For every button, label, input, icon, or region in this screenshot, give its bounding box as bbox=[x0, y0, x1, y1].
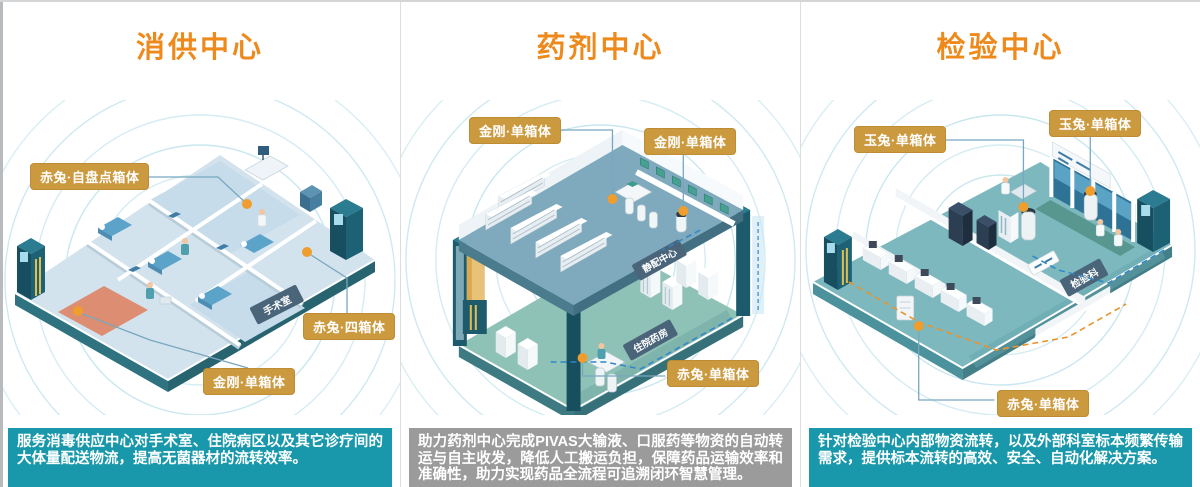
panel-pharmacy-center: 药剂中心 bbox=[400, 0, 800, 487]
scene-laboratory: 检验科 bbox=[801, 100, 1200, 415]
callout-label: 金刚·单箱体 bbox=[203, 368, 295, 395]
panel-title: 药剂中心 bbox=[401, 24, 800, 66]
panel-disinfection-supply-center: 消供中心 bbox=[0, 0, 400, 487]
panel-title: 消供中心 bbox=[0, 24, 400, 66]
smart-cabinet-right bbox=[330, 199, 363, 260]
panel-description: 助力药剂中心完成PIVAS大输液、口服药等物资的自动转运与自主收发，降低人工搬运… bbox=[409, 428, 792, 487]
panel-laboratory-center: 检验中心 bbox=[800, 0, 1200, 487]
callout-label: 玉兔·单箱体 bbox=[1049, 110, 1141, 137]
infographic: 消供中心 bbox=[0, 0, 1200, 487]
callout-label: 金刚·单箱体 bbox=[469, 117, 561, 144]
panel-description: 针对检验中心内部物资流转，以及外部科室标本频繁传输需求，提供标本流转的高效、安全… bbox=[809, 428, 1192, 487]
smart-cabinet-right bbox=[1137, 190, 1170, 252]
callout-label: 赤兔·单箱体 bbox=[667, 360, 759, 387]
callout-label: 赤兔·单箱体 bbox=[997, 390, 1089, 417]
callout-label: 金刚·单箱体 bbox=[644, 128, 736, 155]
callout-label: 赤兔·自盘点箱体 bbox=[30, 163, 149, 190]
scene-disinfection: 手术室 赤兔·自盘点箱体 赤兔·四箱体 金刚·单箱体 bbox=[0, 100, 400, 415]
callout-label: 玉兔·单箱体 bbox=[854, 126, 946, 153]
callout-label: 赤兔·四箱体 bbox=[303, 313, 395, 340]
panel-description: 服务消毒供应中心对手术室、住院病区以及其它诊疗间的大体量配送物流，提高无菌器材的… bbox=[8, 428, 392, 487]
smart-cabinet-left bbox=[17, 238, 45, 300]
smart-cabinet-left bbox=[824, 229, 852, 290]
isometric-hospital-floor-illustration: 手术室 bbox=[0, 100, 400, 415]
panel-title: 检验中心 bbox=[801, 24, 1200, 66]
scene-pharmacy: 静配中心 住院药房 bbox=[401, 100, 800, 415]
